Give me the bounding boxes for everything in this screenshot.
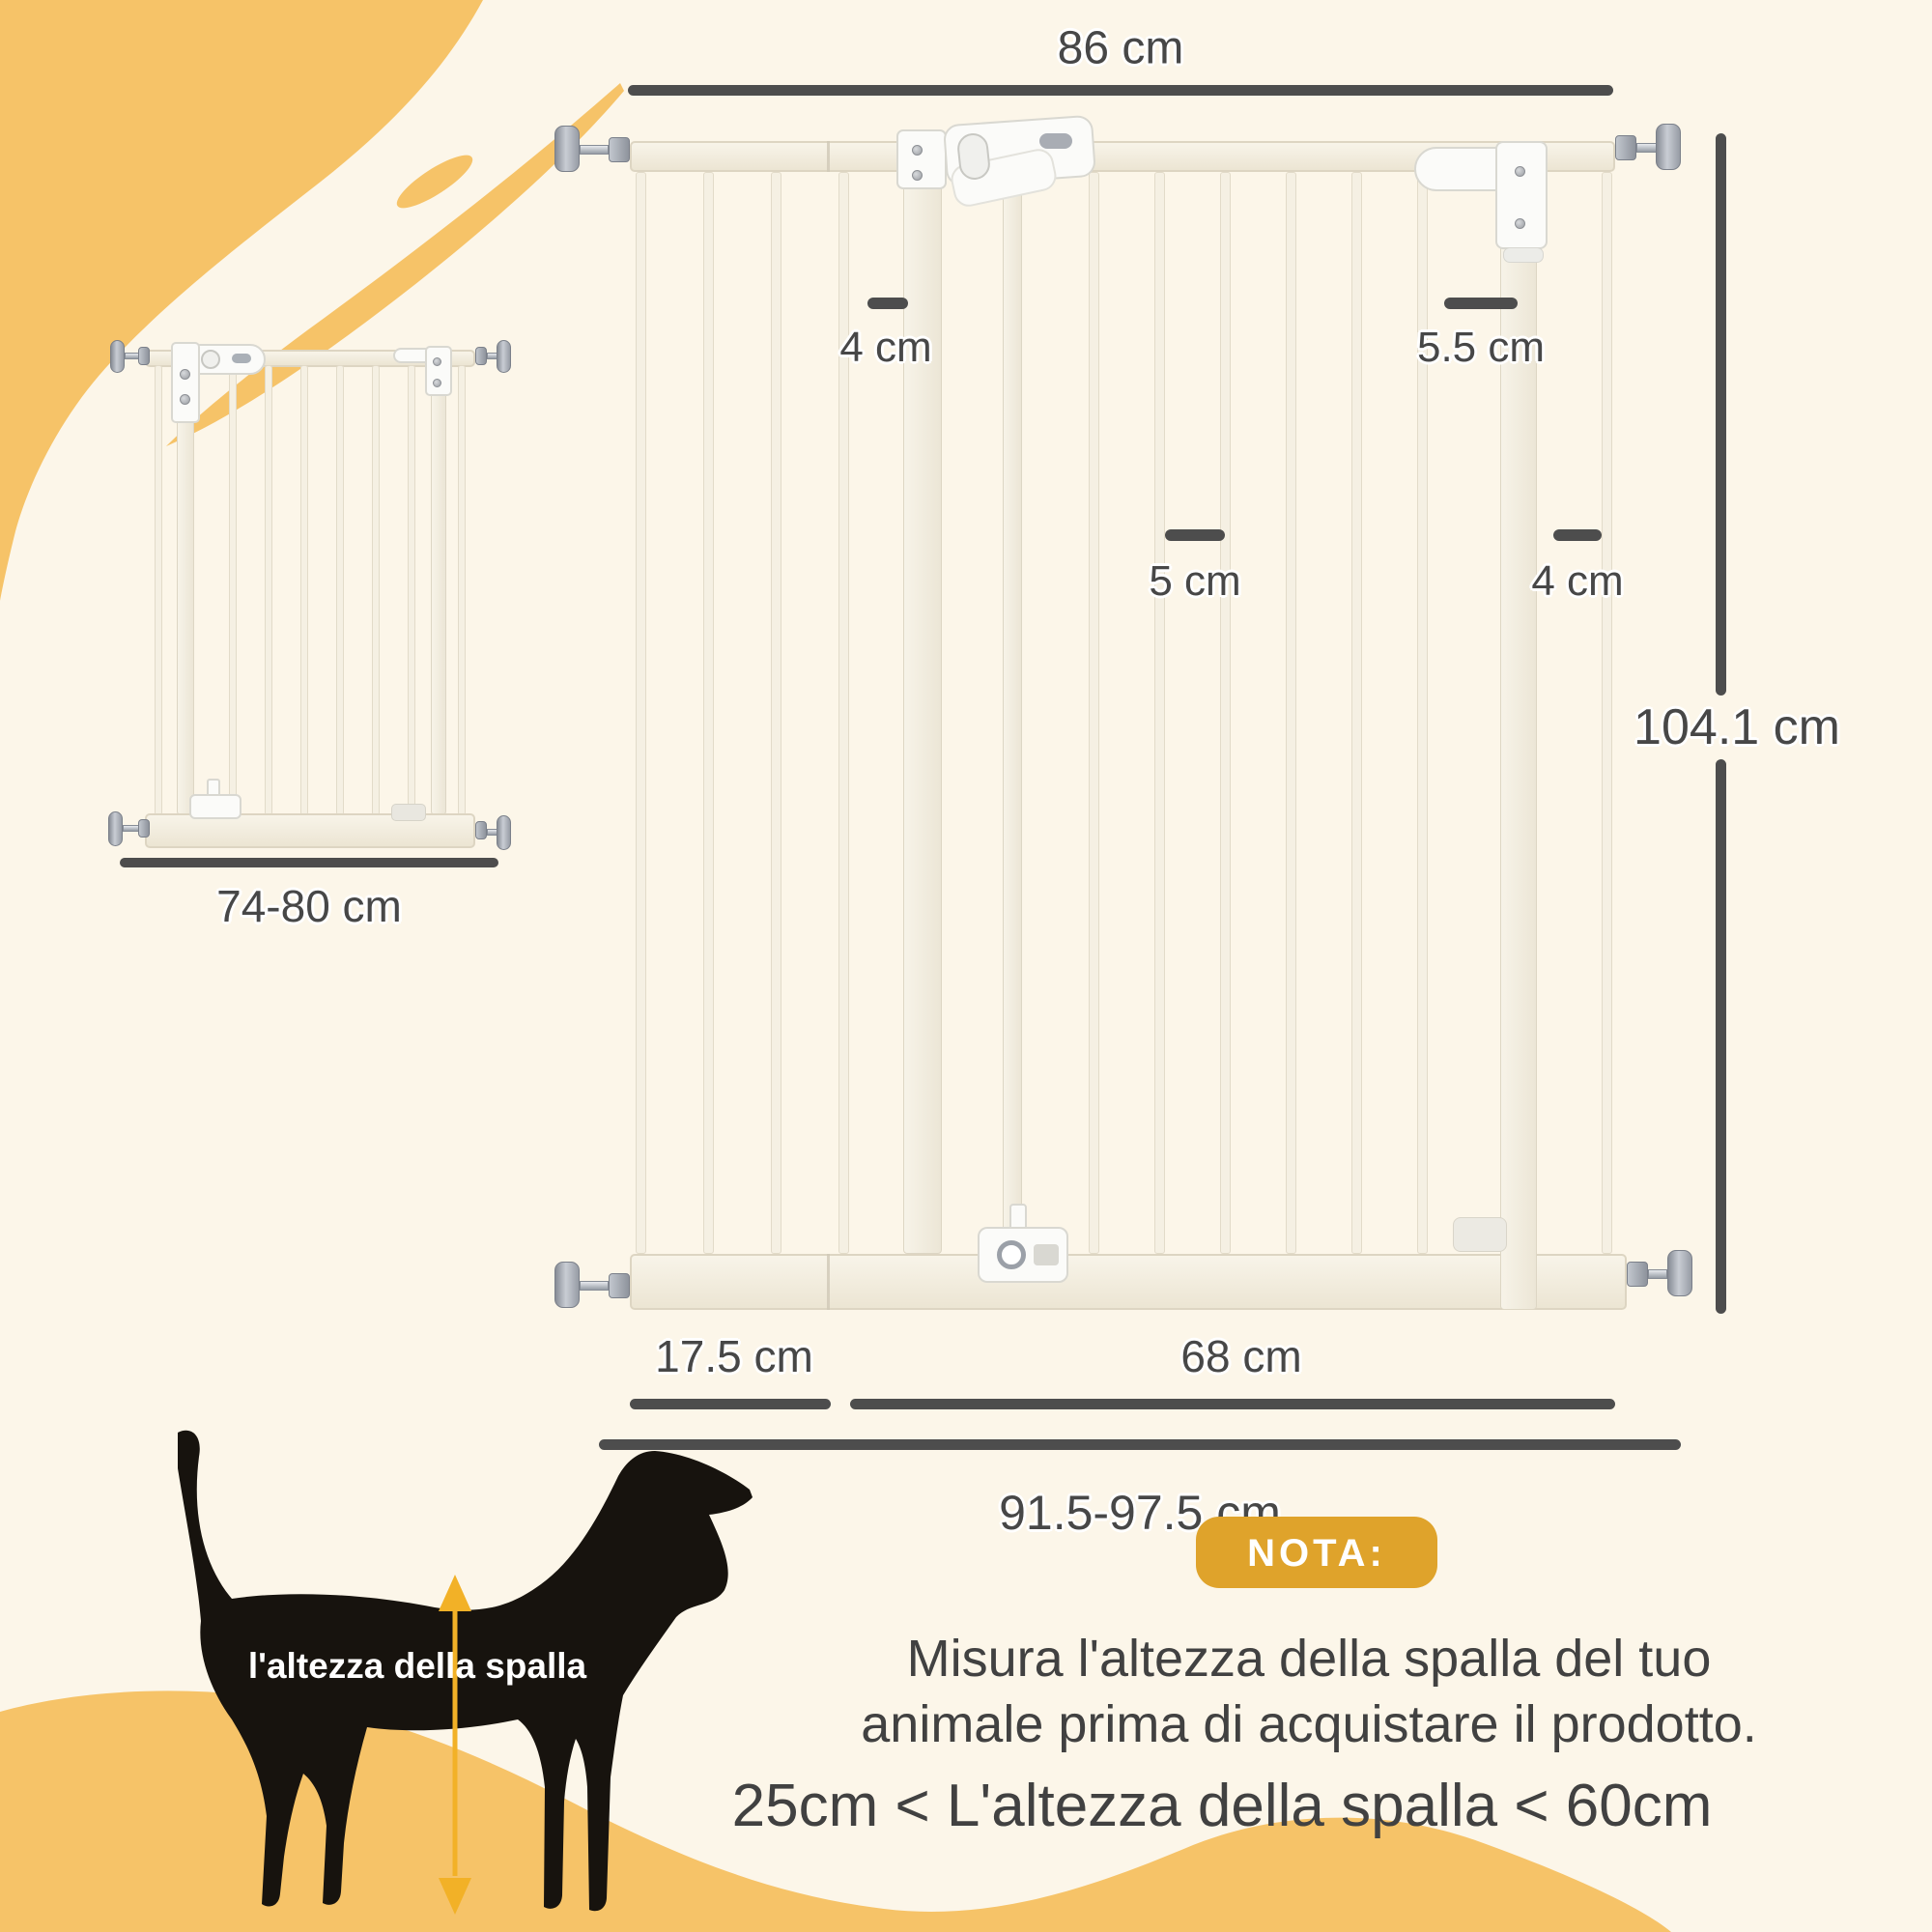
dimension-label-extension: 17.5 cm bbox=[655, 1330, 813, 1382]
dimension-label-left-gap: 4 cm bbox=[839, 324, 931, 372]
dimension-label-door: 68 cm bbox=[1180, 1330, 1301, 1382]
dimension-line-door bbox=[850, 1399, 1615, 1409]
dimension-line-top-width bbox=[628, 85, 1613, 96]
dimension-label-right-gap: 4 cm bbox=[1531, 557, 1623, 606]
dimension-dash-center-gap bbox=[1165, 529, 1225, 541]
shoulder-arrow-down-icon bbox=[439, 1878, 471, 1915]
note-text-line3: 25cm < L'altezza della spalla < 60cm bbox=[560, 1772, 1884, 1840]
dimension-dash-hinge-gap bbox=[1444, 298, 1518, 309]
nota-badge: NOTA: bbox=[1196, 1517, 1437, 1588]
note-text-line2: animale prima di acquistare il prodotto. bbox=[734, 1694, 1884, 1754]
dimension-line-small-gate bbox=[120, 858, 498, 867]
dimension-label-center-gap: 5 cm bbox=[1149, 557, 1240, 606]
dimension-dash-left-gap bbox=[867, 298, 908, 309]
infographic-canvas: 86 cm 104.1 cm 4 cm 5.5 cm 5 cm 4 cm 17.… bbox=[0, 0, 1932, 1932]
dimension-label-small-gate: 74-80 cm bbox=[216, 880, 402, 932]
dimension-label-height: 104.1 cm bbox=[1634, 698, 1840, 756]
shoulder-arrow-up-icon bbox=[439, 1575, 471, 1611]
note-text-line1: Misura l'altezza della spalla del tuo bbox=[734, 1629, 1884, 1689]
dimension-line-height bbox=[1716, 133, 1726, 696]
dimension-dash-right-gap bbox=[1553, 529, 1602, 541]
dimension-label-hinge-gap: 5.5 cm bbox=[1417, 324, 1545, 372]
dog-shoulder-label: l'altezza della spalla bbox=[205, 1646, 630, 1687]
dimension-label-top-width: 86 cm bbox=[1058, 22, 1184, 75]
dimension-line-height bbox=[1716, 759, 1726, 1314]
